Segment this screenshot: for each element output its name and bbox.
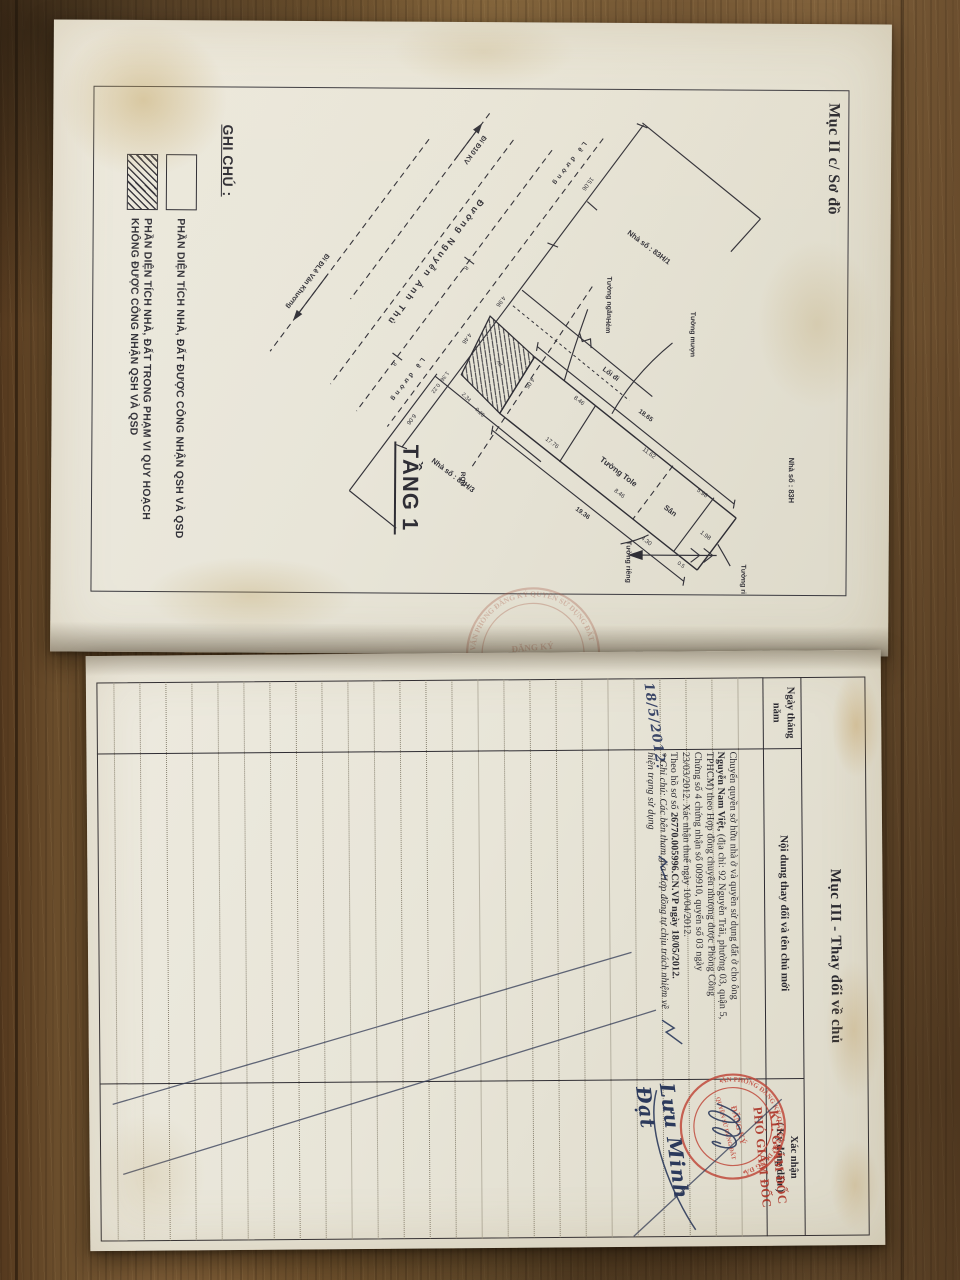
ink-strokes (86, 650, 886, 1251)
right-mid-dim: 8.46 (613, 488, 626, 500)
partition-wall-label: Tường ngăn (605, 277, 612, 319)
alley-dim: 4.96 (494, 295, 506, 308)
direction-label-d10kv: Đi Đ10 KV (461, 134, 487, 165)
private-wall-label: Tường riêng (624, 541, 631, 583)
signature-flourish (653, 1089, 695, 1229)
direction-arrow-left (473, 121, 485, 134)
alley-label: Hẻm (604, 318, 611, 333)
borrowed-wall-label: Tường mượn (689, 312, 696, 357)
tole-wall-label: Tường Tole (598, 455, 639, 489)
ink-tick (662, 1019, 682, 1043)
diagram-page-content: Mục II c/ Sơ đồ 8 8 Đườ (50, 19, 892, 656)
changes-page-content: Mục III - Thay đổi về chủ Ngày tháng năm… (86, 650, 886, 1251)
cancellation-slash (121, 1010, 656, 1174)
cadastral-floor-plan: 8 8 Đường Nguyễn Ảnh Thủ Đi Đ10 KV Đi ĐL… (92, 86, 849, 595)
front-dim: 15.06 (580, 176, 594, 192)
hatched-planning-plot (447, 316, 543, 413)
legend-swatch-planning (127, 154, 158, 210)
legend-item-planning: PHẦN DIỆN TÍCH NHÀ, ĐẤT TRONG PHẠM VI QU… (126, 218, 154, 563)
right-dim-line (485, 426, 692, 586)
end-small-dim: 0.5 (676, 561, 686, 570)
plot-rear-dim: 4.05 (523, 376, 535, 389)
legend-title: GHI CHÚ : (220, 124, 236, 196)
right-front-dim: 17.76 (544, 437, 560, 451)
direction-arrow-right (290, 310, 302, 323)
legend-swatch-recognized (166, 154, 197, 210)
cancellation-slash (111, 952, 632, 1104)
left-outer-dim: 18.65 (637, 408, 655, 424)
road-width-dim: 8 (390, 360, 397, 367)
certificate-diagram-page: Mục II c/ Sơ đồ 8 8 Đườ (50, 19, 892, 656)
legend-item-planning-line2: KHÔNG ĐƯỢC CÔNG NHẬN QSH VÀ QSD (127, 218, 140, 436)
plot-edge-dim: 0.25 (474, 407, 486, 419)
street-name-label: Đường Nguyễn Ảnh Thủ (385, 198, 487, 329)
plot-front-dim: 4.46 (460, 332, 472, 345)
neighbor-83h3-label: Nhà số : 83H/3 (430, 456, 477, 494)
legend-item-planning-line1: PHẦN DIỆN TÍCH NHÀ, ĐẤT TRONG PHẠM VI QU… (140, 218, 154, 520)
left-front-dim: 8.46 (572, 395, 585, 407)
jog-dim: 0.22 (429, 382, 440, 394)
neighbor-83h1-walls (515, 123, 780, 397)
private-wall-label: Tường riêng (739, 564, 746, 594)
yard-label: Sân (662, 503, 679, 519)
left-mid-dim: 11.62 (641, 447, 657, 461)
house-83h-label: Nhà số : 83H (787, 458, 796, 503)
plot-edge-dim: 2.34 (460, 392, 472, 404)
right-outer-dim: 19.36 (574, 506, 592, 522)
end-room-dim: 1.98 (699, 530, 712, 542)
certificate-changes-page: Mục III - Thay đổi về chủ Ngày tháng năm… (86, 650, 886, 1251)
leader-line (545, 309, 607, 380)
ink-tick-small (658, 856, 666, 879)
left-end-dim: 5.98 (695, 488, 708, 500)
floor-label: TẦNG 1 (394, 442, 424, 535)
neighbor-83h1-label: Nhà số : 83H/1 (626, 228, 673, 266)
photo-of-land-certificate: Mục II c/ Sơ đồ 8 8 Đườ (0, 0, 960, 1280)
legend-item-recognized: PHẦN DIỆN TÍCH NHÀ, ĐẤT ĐƯỢC CÔNG NHẬN Q… (172, 218, 187, 563)
signature-scrawl (708, 1103, 740, 1147)
